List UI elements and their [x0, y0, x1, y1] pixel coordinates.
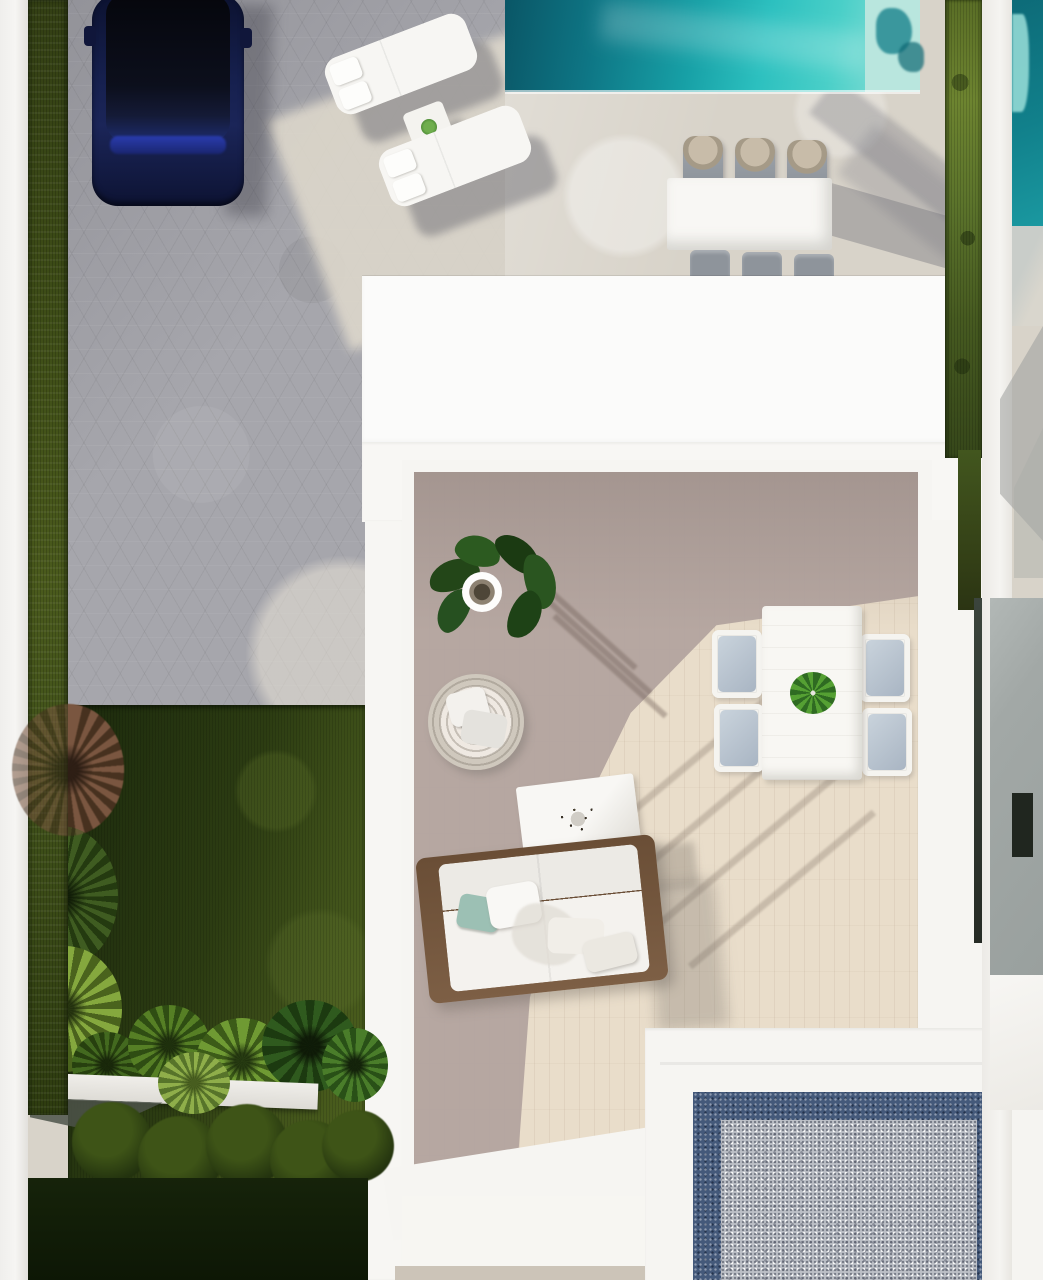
court-step-line — [660, 1062, 1020, 1065]
car-mirror — [84, 26, 96, 46]
table-plant — [790, 672, 836, 714]
car-glass-roof — [106, 0, 230, 142]
aerial-villa-render — [0, 0, 1043, 1280]
chair-seat — [866, 640, 904, 696]
pool-reflection-blob — [898, 42, 924, 72]
terrace-chair — [714, 704, 764, 772]
neighbor-pool-shallow — [1012, 14, 1029, 112]
lounger-pillow — [391, 172, 427, 203]
shrub — [322, 1028, 388, 1102]
cordyline-plant-overlay — [12, 704, 124, 836]
car-windshield-band — [110, 136, 226, 154]
dining-chair — [683, 136, 723, 182]
grass-strip — [28, 0, 68, 1115]
neighbor-window-slot — [1012, 793, 1033, 857]
neighbor-deck — [1012, 226, 1043, 326]
hedge-ball — [322, 1110, 394, 1182]
terrace-chair — [862, 708, 912, 776]
chair-seat — [720, 710, 758, 766]
potted-plant — [462, 572, 502, 612]
terrace-chair — [860, 634, 910, 702]
boundary-wall-left — [0, 0, 28, 1280]
chair-pillow — [459, 708, 508, 749]
hedge-divider — [945, 0, 983, 458]
terrace-chair — [712, 630, 762, 698]
garden-dark-lawn — [28, 1178, 368, 1280]
chair-seat — [718, 636, 756, 692]
shrub — [158, 1052, 230, 1114]
neighbor-lower-wall — [990, 975, 1043, 1110]
neighbor-gray-wall — [990, 598, 1043, 978]
poolside-dining-table — [667, 178, 832, 250]
gravel-court-right-edge — [1007, 1092, 1043, 1280]
hedge-divider-tail — [958, 450, 981, 610]
villa-roof-upper — [362, 276, 948, 444]
dining-chair — [690, 250, 730, 278]
chair-seat — [868, 714, 906, 770]
pool-rim — [505, 90, 920, 94]
lounger-pillow — [337, 80, 373, 111]
lower-patio-sliver — [395, 1266, 667, 1280]
gravel-field — [721, 1120, 977, 1280]
car-mirror — [240, 28, 252, 48]
